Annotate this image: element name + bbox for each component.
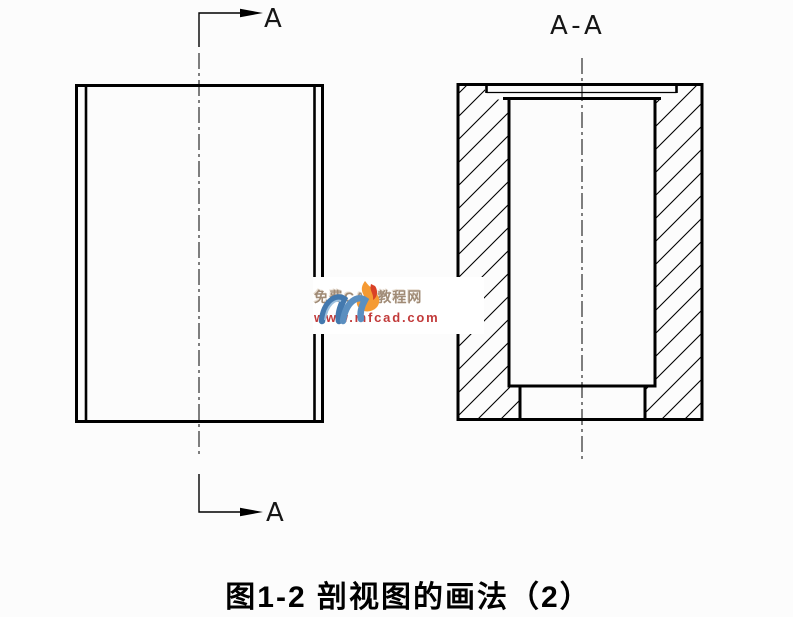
section-arrow-icon — [240, 508, 263, 516]
cut-label-top: A — [264, 6, 284, 32]
section-view — [458, 58, 702, 462]
cutting-plane-top — [199, 9, 263, 47]
figure-caption: 图1-2 剖视图的画法（2） — [0, 572, 793, 616]
cutting-plane-bottom — [199, 474, 263, 516]
mfcad-logo-icon — [315, 277, 391, 329]
section-view-label: A-A — [550, 13, 606, 39]
section-arrow-icon — [240, 9, 263, 17]
figure-canvas: A A A-A 免费CAD教程网 www.mfcad.com 图1-2 剖视图的… — [0, 0, 793, 617]
cut-label-bottom: A — [266, 500, 286, 526]
watermark: 免费CAD教程网 www.mfcad.com — [313, 277, 484, 334]
front-view — [77, 53, 323, 457]
